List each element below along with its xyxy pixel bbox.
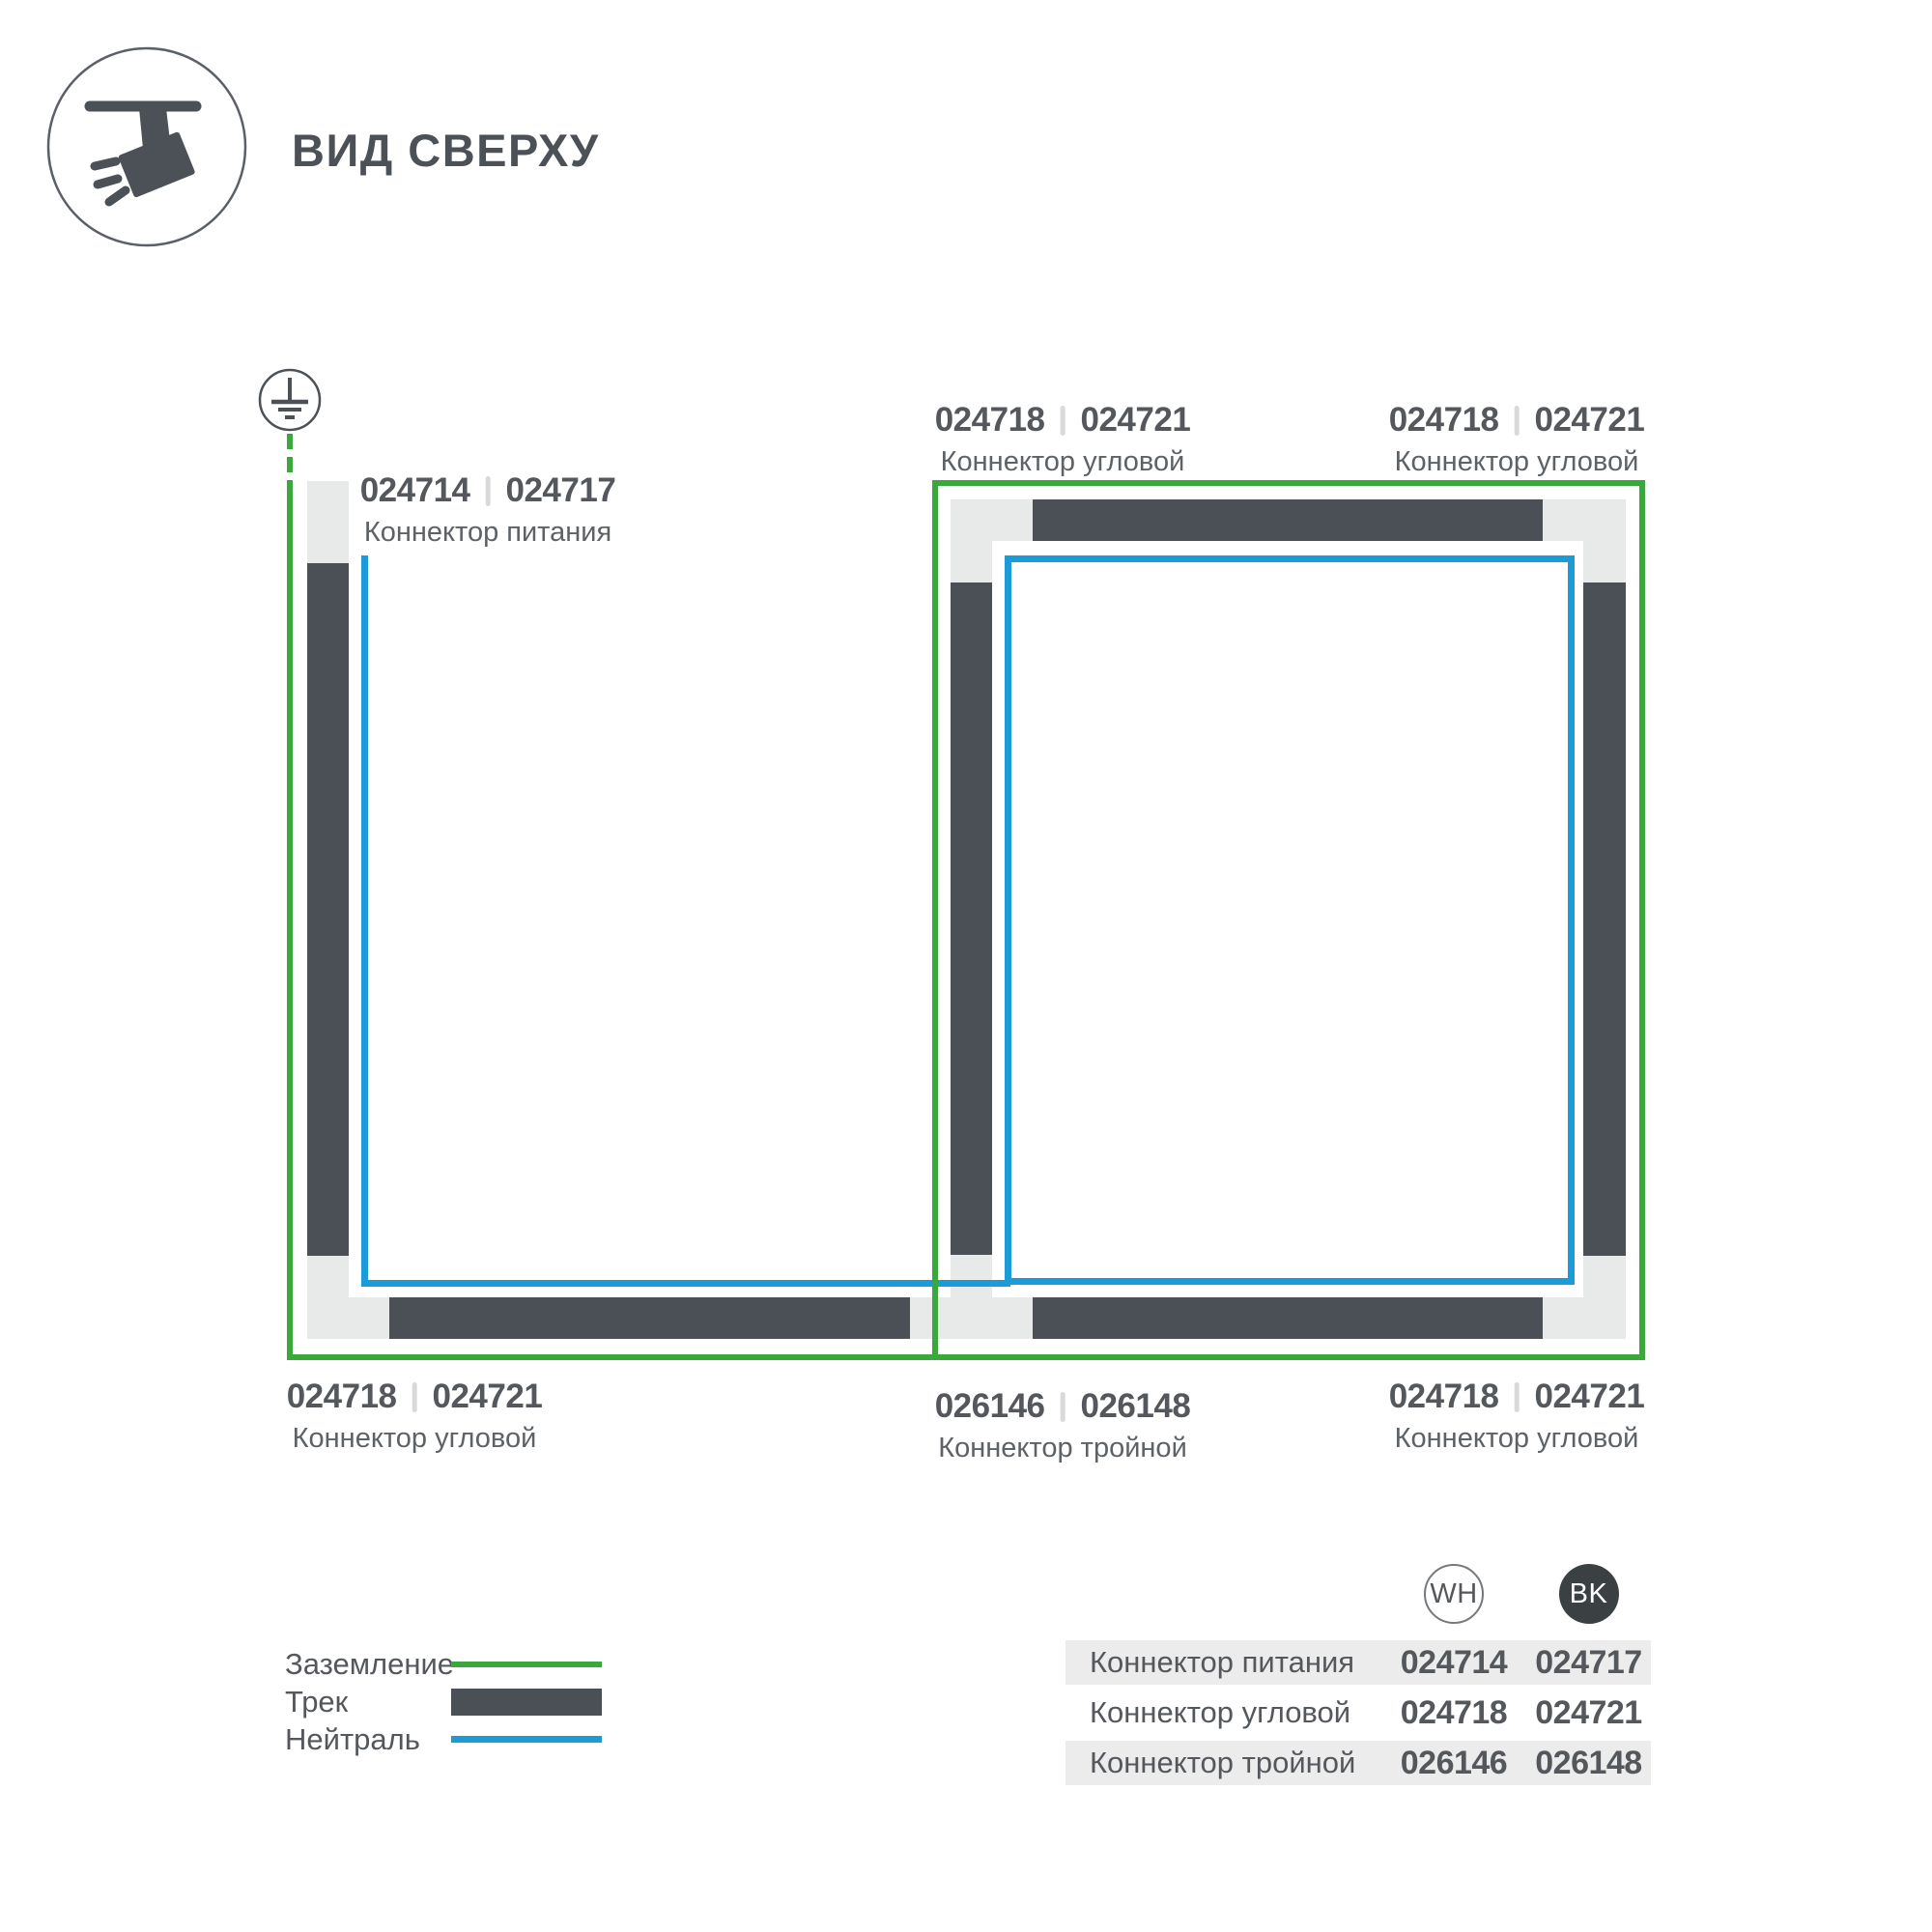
codes: 024718 024721: [935, 401, 1191, 440]
codes: 026146 026148: [935, 1387, 1191, 1426]
table-row-corner-connector: Коннектор угловой 024718 024721: [1065, 1690, 1651, 1735]
code-wh: 024718: [287, 1378, 397, 1416]
label-corner-connector-bottom-left: 024718 024721 Коннектор угловой: [287, 1378, 543, 1455]
row-code-bk: 024721: [1526, 1694, 1651, 1732]
code-bk: 026148: [1081, 1387, 1191, 1426]
codes: 024718 024721: [1389, 1378, 1645, 1416]
variant-cell-bk: BK: [1526, 1564, 1651, 1624]
code-wh: 024718: [935, 401, 1045, 440]
label-power-connector: 024714 024717 Коннектор питания: [360, 471, 616, 549]
table-row-power-connector: Коннектор питания 024714 024717: [1065, 1640, 1651, 1685]
row-name: Коннектор угловой: [1065, 1695, 1381, 1730]
parts-table: WH BK Коннектор питания 024714 024717 Ко…: [1065, 1563, 1651, 1791]
neutral-wire-left-bottom: [361, 1280, 1010, 1287]
row-code-bk: 026148: [1526, 1745, 1651, 1782]
legend-row-track: Трек: [285, 1683, 602, 1720]
code-bk: 024721: [1535, 1378, 1645, 1416]
code-divider: [486, 476, 491, 506]
power-connector-block: [307, 481, 349, 563]
legend-label-ground: Заземление: [285, 1647, 451, 1682]
row-code-wh: 024718: [1381, 1694, 1526, 1732]
table-row-triple-connector: Коннектор тройной 026146 026148: [1065, 1741, 1651, 1785]
legend: Заземление Трек Нейтраль: [285, 1645, 602, 1758]
row-name: Коннектор тройной: [1065, 1746, 1381, 1780]
code-divider: [1061, 1392, 1065, 1422]
code-wh: 026146: [935, 1387, 1045, 1426]
legend-row-neutral: Нейтраль: [285, 1720, 602, 1758]
variant-badge-wh: WH: [1424, 1564, 1484, 1624]
part-name: Коннектор угловой: [287, 1423, 543, 1455]
part-name: Коннектор питания: [360, 517, 616, 549]
row-code-wh: 026146: [1381, 1745, 1526, 1782]
code-wh: 024714: [360, 471, 470, 510]
codes: 024714 024717: [360, 471, 616, 510]
part-name: Коннектор угловой: [935, 446, 1191, 478]
variant-badge-bk: BK: [1559, 1564, 1619, 1624]
part-name: Коннектор угловой: [1389, 446, 1645, 478]
corner-connector-block-bottom-left-v: [307, 1256, 349, 1339]
neutral-wire-left-vertical: [361, 555, 368, 1287]
part-name: Коннектор тройной: [935, 1433, 1191, 1464]
label-corner-connector-top-2: 024718 024721 Коннектор угловой: [1389, 401, 1645, 478]
row-code-bk: 024717: [1526, 1644, 1651, 1682]
ground-wire-left-vertical: [287, 480, 293, 1360]
codes: 024718 024721: [287, 1378, 543, 1416]
code-wh: 024718: [1389, 401, 1499, 440]
legend-label-track: Трек: [285, 1685, 451, 1719]
codes: 024718 024721: [1389, 401, 1645, 440]
code-bk: 024721: [433, 1378, 543, 1416]
parts-table-header: WH BK: [1065, 1563, 1651, 1625]
legend-swatch-neutral-line: [451, 1736, 602, 1743]
ground-wire-right-loop: [932, 480, 1645, 1360]
corner-connector-block-bottom-left-h: [349, 1297, 389, 1339]
track-left-vertical: [307, 563, 349, 1256]
track-spotlight-icon: [44, 44, 249, 249]
code-divider: [1515, 406, 1520, 436]
code-bk: 024721: [1535, 401, 1645, 440]
code-divider: [1515, 1382, 1520, 1412]
legend-swatch-track-bar: [451, 1689, 602, 1716]
code-divider: [412, 1382, 417, 1412]
ground-symbol-icon: [257, 367, 323, 433]
code-divider: [1061, 406, 1065, 436]
label-corner-connector-bottom-right: 024718 024721 Коннектор угловой: [1389, 1378, 1645, 1455]
part-name: Коннектор угловой: [1389, 1423, 1645, 1455]
label-corner-connector-top-1: 024718 024721 Коннектор угловой: [935, 401, 1191, 478]
row-code-wh: 024714: [1381, 1644, 1526, 1682]
legend-swatch-ground-line: [451, 1662, 602, 1667]
code-bk: 024721: [1081, 401, 1191, 440]
legend-label-neutral: Нейтраль: [285, 1722, 451, 1757]
row-name: Коннектор питания: [1065, 1645, 1381, 1680]
ground-wire-dashed-lead: [287, 434, 293, 478]
track-left-bottom: [389, 1297, 910, 1339]
legend-row-ground: Заземление: [285, 1645, 602, 1683]
top-view-diagram-page: ВИД СВЕРХУ 024714 02471: [0, 0, 1932, 1932]
page-title: ВИД СВЕРХУ: [292, 124, 600, 177]
code-wh: 024718: [1389, 1378, 1499, 1416]
label-triple-connector-bottom: 026146 026148 Коннектор тройной: [935, 1387, 1191, 1464]
variant-cell-wh: WH: [1381, 1564, 1526, 1624]
code-bk: 024717: [506, 471, 616, 510]
